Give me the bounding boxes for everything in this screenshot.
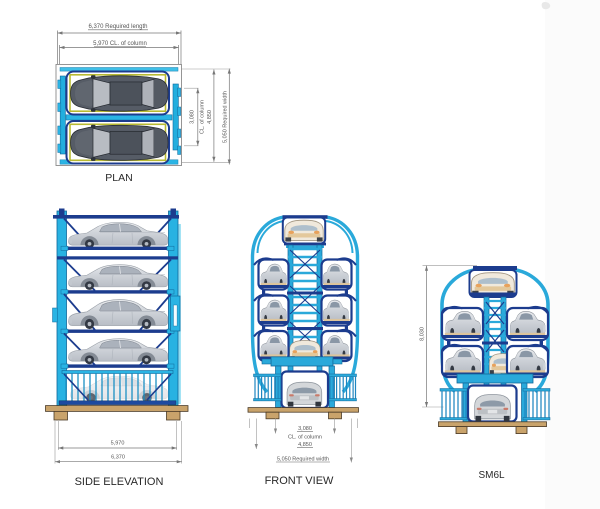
svg-text:3,080: 3,080 — [190, 110, 196, 124]
svg-text:6,370 Required length: 6,370 Required length — [88, 24, 147, 30]
svg-text:PLAN: PLAN — [105, 172, 132, 184]
svg-text:5,050 Required width: 5,050 Required width — [223, 91, 229, 143]
svg-text:4,850: 4,850 — [207, 110, 213, 124]
svg-text:4,850: 4,850 — [298, 442, 312, 448]
svg-text:3,080: 3,080 — [298, 426, 312, 432]
svg-text:CL. of column: CL. of column — [200, 100, 206, 134]
svg-text:5,970: 5,970 — [111, 441, 125, 447]
svg-text:8,030: 8,030 — [420, 327, 426, 341]
svg-text:6,370: 6,370 — [111, 455, 125, 461]
svg-text:FRONT VIEW: FRONT VIEW — [265, 475, 334, 487]
svg-text:SM6L: SM6L — [478, 470, 505, 481]
svg-text:CL. of column: CL. of column — [288, 435, 322, 441]
svg-text:5,050 Required width: 5,050 Required width — [277, 457, 329, 463]
svg-text:5,970 CL. of column: 5,970 CL. of column — [93, 41, 147, 47]
svg-text:SIDE ELEVATION: SIDE ELEVATION — [75, 476, 164, 488]
